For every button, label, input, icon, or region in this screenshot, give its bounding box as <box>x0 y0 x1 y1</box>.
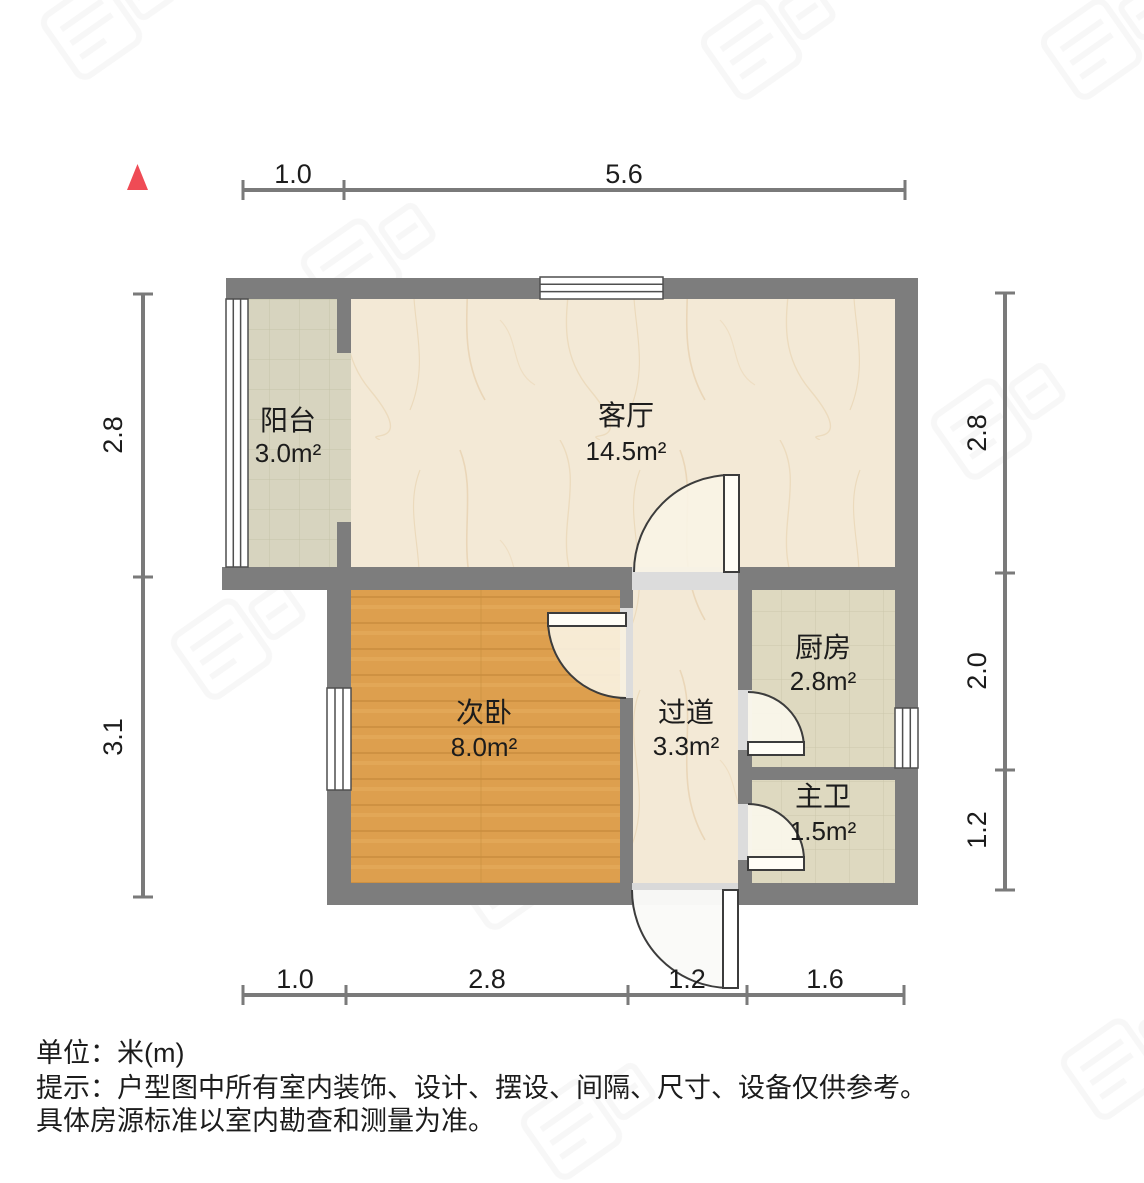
floor-plan-page: 阳台 3.0m² 客厅 14.5m² 次卧 8.0m² 过道 3.3m² 厨房 … <box>0 0 1144 1183</box>
unit-note: 单位：米(m) <box>36 1038 184 1068</box>
tip-line-1: 提示：户型图中所有室内装饰、设计、摆设、间隔、尺寸、设备仅供参考。 <box>36 1073 927 1103</box>
dim-left-1: 2.8 <box>98 416 128 454</box>
wall-bottom-right <box>738 883 918 905</box>
wall-kitchen-bath-divider <box>738 767 895 780</box>
balcony-area: 3.0m² <box>255 438 322 468</box>
wall-hallway-right-upper <box>738 588 752 690</box>
dim-left-2: 3.1 <box>98 718 128 756</box>
balcony-label: 阳台 <box>260 405 316 436</box>
bedroom-label: 次卧 <box>456 697 512 728</box>
wall-kitchen-top <box>738 567 918 590</box>
tip-line-2: 具体房源标准以室内勘查和测量为准。 <box>36 1106 495 1136</box>
bathroom-area: 1.5m² <box>790 816 857 846</box>
kitchen-area: 2.8m² <box>790 666 857 696</box>
wall-bedroom-top <box>351 567 632 590</box>
balcony-window <box>226 299 248 567</box>
hallway-area: 3.3m² <box>653 731 720 761</box>
top-window <box>540 277 663 299</box>
wall-bottom-left <box>327 883 632 905</box>
floor-plan-svg: 阳台 3.0m² 客厅 14.5m² 次卧 8.0m² 过道 3.3m² 厨房 … <box>0 0 1144 1183</box>
living-room-label: 客厅 <box>598 400 654 431</box>
dim-right-2: 2.0 <box>962 652 992 690</box>
wall-right <box>895 278 918 905</box>
living-room-area: 14.5m² <box>586 436 667 466</box>
wall-balcony-divider-bottom <box>337 522 351 572</box>
dim-right-1: 2.8 <box>962 414 992 452</box>
hallway-label: 过道 <box>658 697 714 728</box>
wall-bedroom-right-lower <box>620 698 633 883</box>
wall-bedroom-left-upper <box>327 567 351 688</box>
dim-bottom-2: 2.8 <box>468 964 506 994</box>
dim-right-3: 1.2 <box>962 811 992 849</box>
bedroom-area: 8.0m² <box>451 732 518 762</box>
dim-top-2: 5.6 <box>605 159 643 189</box>
bathroom-label: 主卫 <box>795 781 851 812</box>
kitchen-label: 厨房 <box>795 632 851 663</box>
dim-bottom-4: 1.6 <box>806 964 844 994</box>
living-room-floor <box>351 299 895 567</box>
wall-bedroom-left-lower <box>327 790 351 905</box>
bedroom-window <box>327 688 351 790</box>
kitchen-window <box>895 708 918 768</box>
dim-bottom-3: 1.2 <box>668 964 706 994</box>
dim-bottom-1: 1.0 <box>276 964 314 994</box>
wall-bedroom-right-upper <box>620 588 633 608</box>
wall-balcony-divider-top <box>337 295 351 353</box>
dim-top-1: 1.0 <box>274 159 312 189</box>
